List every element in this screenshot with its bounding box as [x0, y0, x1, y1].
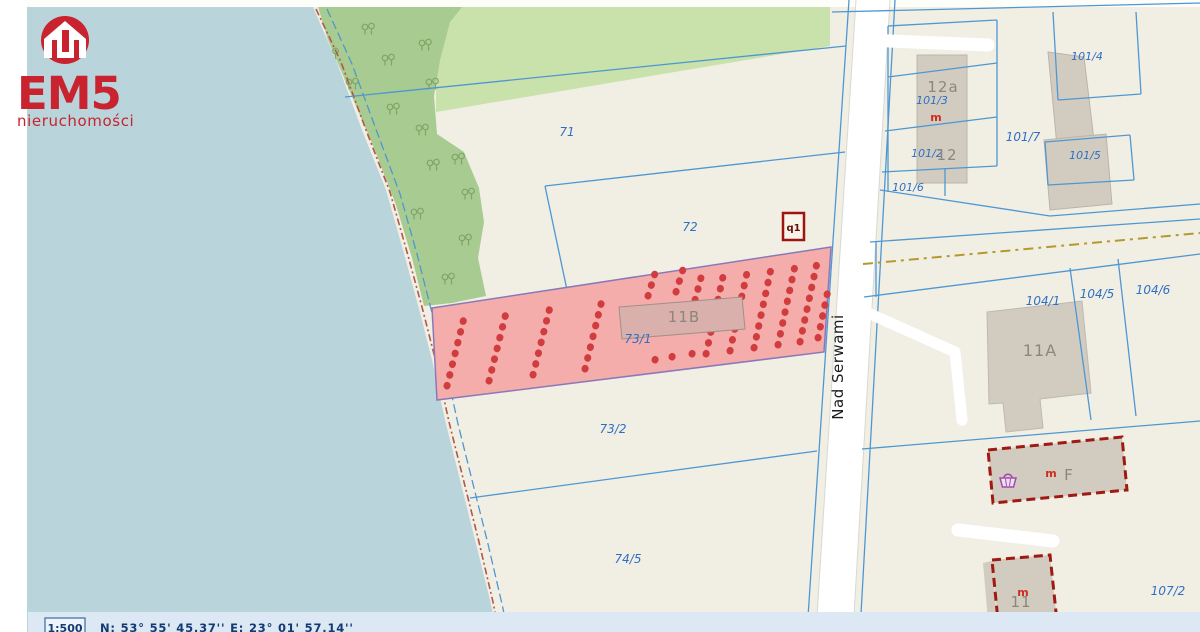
parcel-label-73-1: 73/1 — [625, 332, 652, 346]
parcel-label-71: 71 — [559, 125, 574, 139]
parcel-label-101-4: 101/4 — [1071, 50, 1103, 63]
map-canvas[interactable]: q1 71 72 73/1 73/2 74/5 101/3 101/2 101/… — [0, 0, 1200, 632]
building-label-11b: 11B — [668, 308, 700, 326]
parcel-label-101-5: 101/5 — [1069, 149, 1101, 162]
building-label-11a: 11A — [1023, 341, 1057, 360]
map-viewer: q1 71 72 73/1 73/2 74/5 101/3 101/2 101/… — [0, 0, 1200, 632]
residential-symbol: m — [1017, 586, 1028, 599]
coordinates-readout: N: 53° 55' 45.37'' E: 23° 01' 57.14'' — [100, 621, 354, 632]
logo-subtitle-text: nieruchomości — [17, 112, 134, 130]
parcel-label-104-1: 104/1 — [1026, 294, 1061, 308]
residential-symbol: m — [930, 111, 941, 124]
street-name-label: Nad Serwami — [829, 314, 847, 419]
parcel-label-104-6: 104/6 — [1136, 283, 1171, 297]
statusbar: 1:500 N: 53° 55' 45.37'' E: 23° 01' 57.1… — [28, 612, 1200, 632]
marker-label: q1 — [786, 223, 800, 234]
parcel-label-74-5: 74/5 — [615, 552, 642, 566]
map-marker-q1[interactable]: q1 — [783, 213, 804, 240]
parcel-label-72: 72 — [682, 220, 697, 234]
building-northeast-2 — [1044, 134, 1112, 210]
building-label-12: 12 — [936, 146, 957, 164]
top-margin — [0, 0, 1200, 7]
scale-value: 1:500 — [47, 622, 82, 632]
parcel-label-107-2: 107/2 — [1151, 584, 1186, 598]
parcel-label-101-6: 101/6 — [892, 181, 924, 194]
parcel-label-101-7: 101/7 — [1006, 130, 1041, 144]
residential-symbol: m — [1045, 467, 1056, 480]
building-label-12a: 12a — [927, 78, 958, 96]
building-label-f: F — [1064, 466, 1074, 484]
parcel-label-104-5: 104/5 — [1080, 287, 1115, 301]
parcel-label-73-2: 73/2 — [600, 422, 627, 436]
